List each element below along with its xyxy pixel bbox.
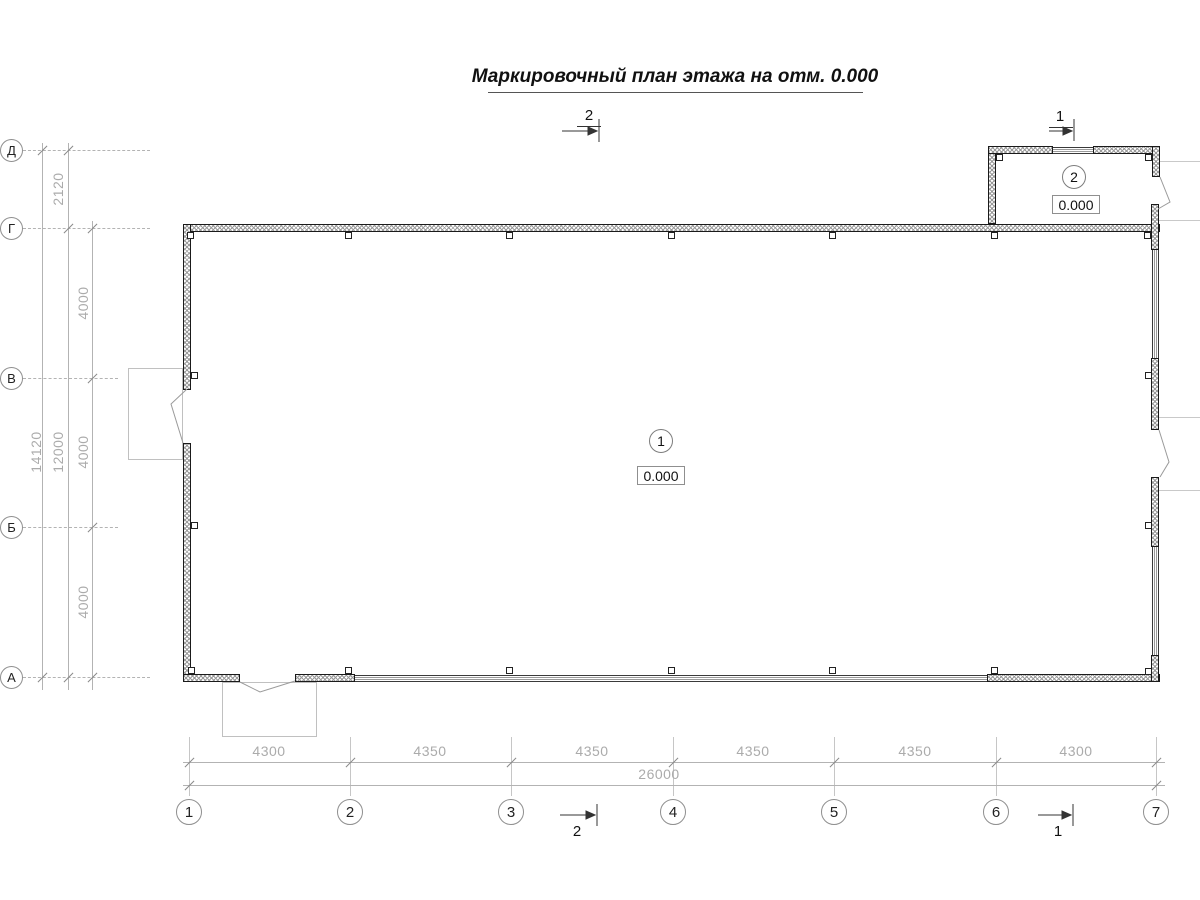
row-axis-bubble-g: Г xyxy=(0,217,23,240)
pilaster xyxy=(1145,522,1152,529)
pilaster xyxy=(187,232,194,239)
annex-window-top xyxy=(1053,147,1093,154)
section-2-top-underline xyxy=(577,126,601,127)
col-axis-bubble-6: 6 xyxy=(983,799,1009,825)
annex-wall-left xyxy=(988,146,996,224)
pilaster xyxy=(506,667,513,674)
pilaster xyxy=(345,232,352,239)
room-1-bubble: 1 xyxy=(649,429,673,453)
section-1-top-label: 1 xyxy=(1051,108,1069,125)
row-axis-label: Б xyxy=(7,520,16,535)
pilaster xyxy=(1145,154,1152,161)
floor-plan-sheet: Маркировочный план этажа на отм. 0.000 Д… xyxy=(0,0,1200,900)
room-number: 1 xyxy=(657,433,665,449)
wall-right-corner xyxy=(1151,655,1159,682)
leader-line xyxy=(1159,490,1200,491)
col-axis-bubble-3: 3 xyxy=(498,799,524,825)
door-swing-right xyxy=(1159,430,1169,477)
row-axis-bubble-v: В xyxy=(0,367,23,390)
witness-line-col-5 xyxy=(834,737,835,796)
leader-line xyxy=(1159,220,1200,221)
annex-wall-top-1 xyxy=(988,146,1053,154)
pilaster xyxy=(506,232,513,239)
pilaster xyxy=(991,232,998,239)
dim-text-4000-c: 4000 xyxy=(75,585,91,618)
section-1-bottom-label: 1 xyxy=(1049,823,1067,840)
row-axis-bubble-a: А xyxy=(0,666,23,689)
pilaster xyxy=(668,667,675,674)
pilaster xyxy=(996,154,1003,161)
row-axis-label: В xyxy=(7,371,16,386)
wall-bottom-2 xyxy=(295,674,355,682)
wall-bottom-1 xyxy=(183,674,240,682)
dim-line-total-vertical xyxy=(42,143,43,690)
dim-text-4350-c: 4350 xyxy=(736,743,769,759)
pilaster xyxy=(1145,668,1152,675)
dim-text-12000: 12000 xyxy=(50,431,66,472)
row-axis-bubble-d: Д xyxy=(0,139,23,162)
col-axis-bubble-2: 2 xyxy=(337,799,363,825)
wall-right-mid2 xyxy=(1151,477,1159,547)
pilaster xyxy=(829,667,836,674)
leader-line xyxy=(1159,417,1200,418)
dim-line-segments-vertical xyxy=(92,221,93,690)
dim-text-4300-b: 4300 xyxy=(1059,743,1092,759)
witness-line-col-6 xyxy=(996,737,997,796)
door-swing-annex xyxy=(1158,177,1170,209)
dim-text-4300-a: 4300 xyxy=(252,743,285,759)
room-1-elevation: 0.000 xyxy=(637,466,685,485)
window-right-lower xyxy=(1152,547,1159,657)
dim-text-4000-b: 4000 xyxy=(75,435,91,468)
dim-line-subtotal-vertical xyxy=(68,143,69,690)
dim-text-26000: 26000 xyxy=(638,766,679,782)
pilaster xyxy=(191,522,198,529)
witness-line-col-7 xyxy=(1156,737,1157,796)
pilaster xyxy=(191,372,198,379)
room-2-bubble: 2 xyxy=(1062,165,1086,189)
row-axis-label: Г xyxy=(8,221,15,236)
col-axis-label: 7 xyxy=(1152,804,1160,821)
annex-wall-right xyxy=(1152,146,1160,177)
col-axis-bubble-1: 1 xyxy=(176,799,202,825)
window-band-bottom xyxy=(355,675,987,682)
pilaster xyxy=(991,667,998,674)
witness-line-col-3 xyxy=(511,737,512,796)
wall-left-upper xyxy=(183,224,191,390)
row-axis-bubble-b: Б xyxy=(0,516,23,539)
pilaster xyxy=(1144,232,1151,239)
row-axis-label: Д xyxy=(7,143,16,158)
axis-line-row-v xyxy=(23,378,118,379)
col-axis-label: 1 xyxy=(185,804,193,821)
wall-bottom-3 xyxy=(987,674,1160,682)
pilaster xyxy=(345,667,352,674)
wall-right-tee xyxy=(1151,204,1159,250)
col-axis-bubble-4: 4 xyxy=(660,799,686,825)
axis-line-row-b xyxy=(23,527,118,528)
window-right-upper xyxy=(1152,250,1159,360)
section-2-bottom-label: 2 xyxy=(568,823,586,840)
dim-text-4350-b: 4350 xyxy=(575,743,608,759)
pilaster xyxy=(1145,372,1152,379)
col-axis-label: 5 xyxy=(830,804,838,821)
drawing-title: Маркировочный план этажа на отм. 0.000 xyxy=(455,66,895,88)
dim-line-total-horizontal xyxy=(183,785,1165,786)
witness-line-col-1 xyxy=(189,737,190,796)
col-axis-label: 2 xyxy=(346,804,354,821)
dim-text-4350-a: 4350 xyxy=(413,743,446,759)
leader-line xyxy=(1160,161,1200,162)
dim-text-2120: 2120 xyxy=(50,172,66,205)
wall-top xyxy=(183,224,1160,232)
porch-bottom xyxy=(222,682,317,737)
col-axis-label: 6 xyxy=(992,804,1000,821)
annex-wall-top-2 xyxy=(1093,146,1160,154)
title-underline xyxy=(488,92,863,93)
col-axis-label: 4 xyxy=(669,804,677,821)
pilaster xyxy=(829,232,836,239)
pilaster xyxy=(188,667,195,674)
room-2-elevation: 0.000 xyxy=(1052,195,1100,214)
col-axis-label: 3 xyxy=(507,804,515,821)
wall-left-lower xyxy=(183,443,191,682)
wall-right-mid1 xyxy=(1151,358,1159,430)
dim-text-14120: 14120 xyxy=(28,431,44,472)
col-axis-bubble-7: 7 xyxy=(1143,799,1169,825)
porch-left xyxy=(128,368,183,460)
room-number: 2 xyxy=(1070,169,1078,185)
dim-text-4350-d: 4350 xyxy=(898,743,931,759)
witness-line-col-2 xyxy=(350,737,351,796)
dim-text-4000-a: 4000 xyxy=(75,286,91,319)
pilaster xyxy=(668,232,675,239)
col-axis-bubble-5: 5 xyxy=(821,799,847,825)
section-1-top-underline xyxy=(1049,127,1073,128)
section-2-top-label: 2 xyxy=(580,107,598,124)
row-axis-label: А xyxy=(7,670,16,685)
